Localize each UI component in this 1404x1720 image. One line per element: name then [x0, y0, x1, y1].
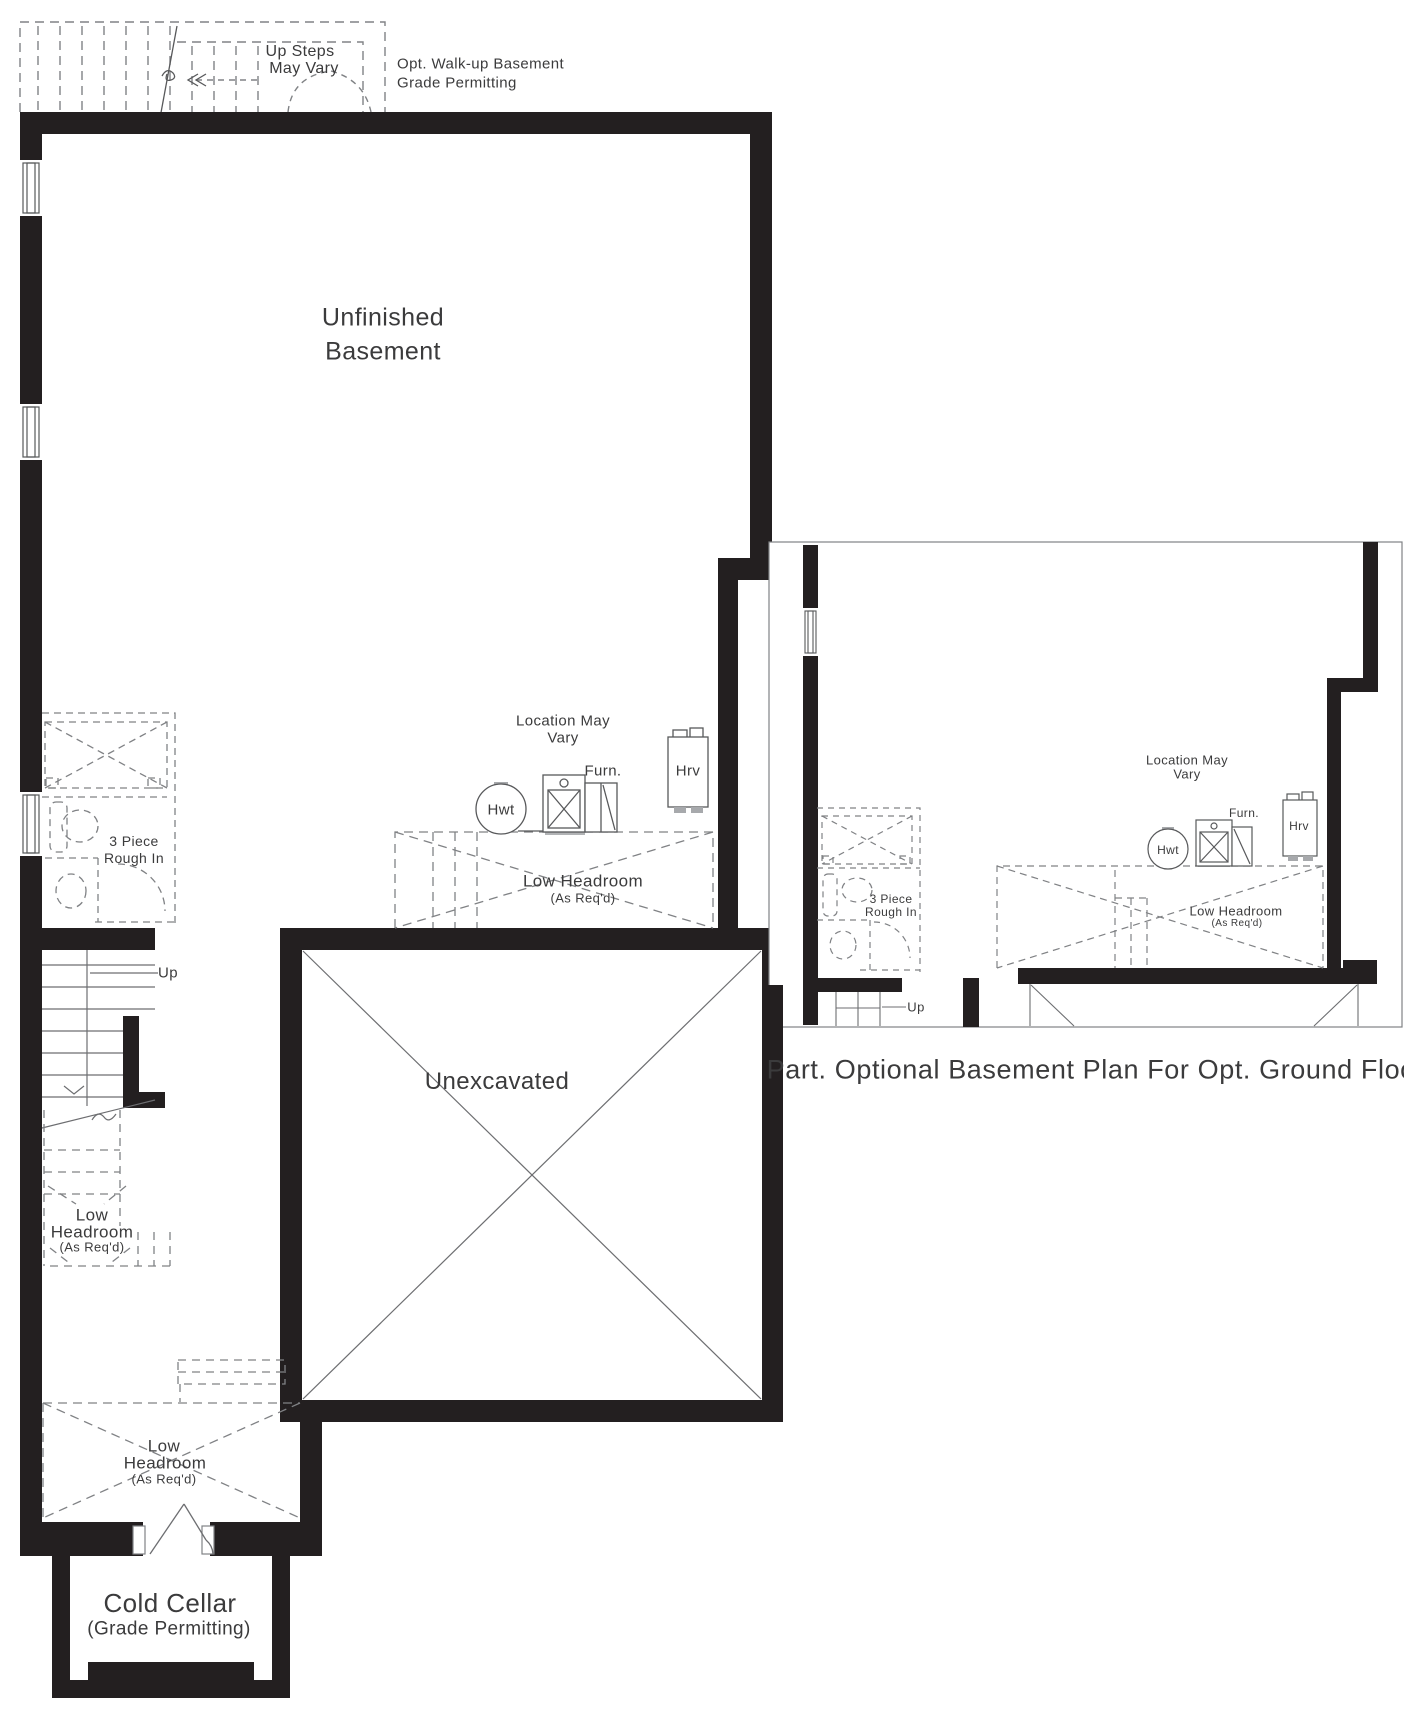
- walkup-stairs-note: Up Steps: [265, 44, 334, 60]
- stair-low-headroom-label: Low: [76, 1207, 108, 1224]
- optional-window-icon: [803, 608, 818, 656]
- cellar-door: [133, 1504, 214, 1554]
- optional-low-headroom-label: Low Headroom: [1190, 905, 1283, 918]
- dashed-step-box: [178, 1360, 285, 1402]
- floor-plan-drawing: [0, 0, 1404, 1720]
- walkup-stairs-note: May Vary: [269, 61, 339, 77]
- furnace-icon: [518, 775, 617, 835]
- rough-in-label: 3 Piece: [109, 834, 159, 848]
- cellar-low-headroom-label: Headroom: [124, 1455, 207, 1472]
- stair-low-headroom-label: (As Req'd): [59, 1241, 124, 1254]
- main-plan-walls: [762, 985, 783, 1422]
- optional-location-note: Vary: [1173, 768, 1200, 781]
- optional-low-headroom-label: (As Req'd): [1212, 919, 1263, 929]
- optional-hrv-label: Hrv: [1289, 820, 1309, 832]
- room-label-unfinished-basement: Unfinished: [322, 306, 444, 331]
- optional-plan-caption: Part. Optional Basement Plan For Opt. Gr…: [767, 1057, 1404, 1084]
- optional-up-label: Up: [907, 1001, 924, 1014]
- location-note: Location May: [516, 714, 610, 729]
- low-headroom-mid-label: (As Req'd): [550, 892, 615, 905]
- location-note: Vary: [547, 731, 578, 746]
- walkup-note: Opt. Walk-up Basement: [397, 57, 564, 72]
- up-label: Up: [158, 966, 178, 981]
- optional-furnace-icon: [1196, 820, 1252, 867]
- optional-furn-label: Furn.: [1229, 807, 1259, 819]
- cellar-low-headroom-label: (As Req'd): [131, 1473, 196, 1486]
- rough-in-fixtures: [42, 713, 175, 928]
- hwt-label: Hwt: [487, 803, 514, 818]
- furn-label: Furn.: [584, 764, 621, 779]
- walkup-direction-marks: [160, 26, 206, 118]
- optional-plan-border: [769, 542, 1402, 1027]
- low-headroom-mid-label: Low Headroom: [523, 873, 643, 890]
- rough-in-label: Rough In: [104, 851, 164, 865]
- unexcavated-cross: [303, 951, 761, 1399]
- unexcavated-label: Unexcavated: [425, 1070, 570, 1094]
- optional-rough-in-label: Rough In: [865, 906, 917, 918]
- optional-location-note: Location May: [1146, 754, 1228, 767]
- cellar-low-headroom-label: Low: [148, 1438, 180, 1455]
- basement-floor-plan: Up Steps May Vary Opt. Walk-up Basement …: [0, 0, 1404, 1720]
- optional-rough-in-label: 3 Piece: [870, 893, 913, 905]
- optional-hwt-label: Hwt: [1157, 844, 1179, 856]
- room-label-unfinished-basement: Basement: [325, 340, 441, 365]
- cold-cellar-label: Cold Cellar: [103, 1590, 236, 1616]
- stair-low-headroom-label: Headroom: [51, 1224, 134, 1241]
- hrv-label: Hrv: [676, 764, 701, 779]
- cold-cellar-label: (Grade Permitting): [87, 1620, 250, 1639]
- walkup-note: Grade Permitting: [397, 76, 517, 91]
